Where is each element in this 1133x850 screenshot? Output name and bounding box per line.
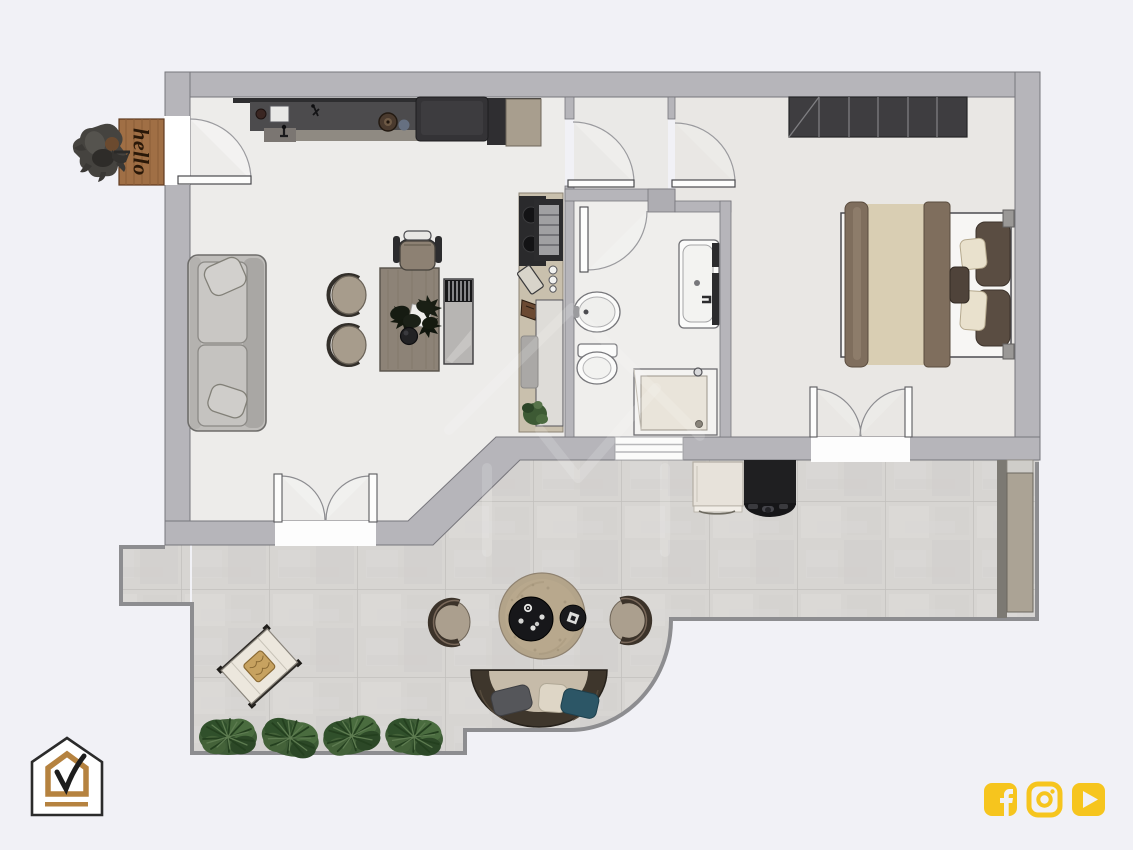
svg-text:hello: hello xyxy=(129,128,154,176)
